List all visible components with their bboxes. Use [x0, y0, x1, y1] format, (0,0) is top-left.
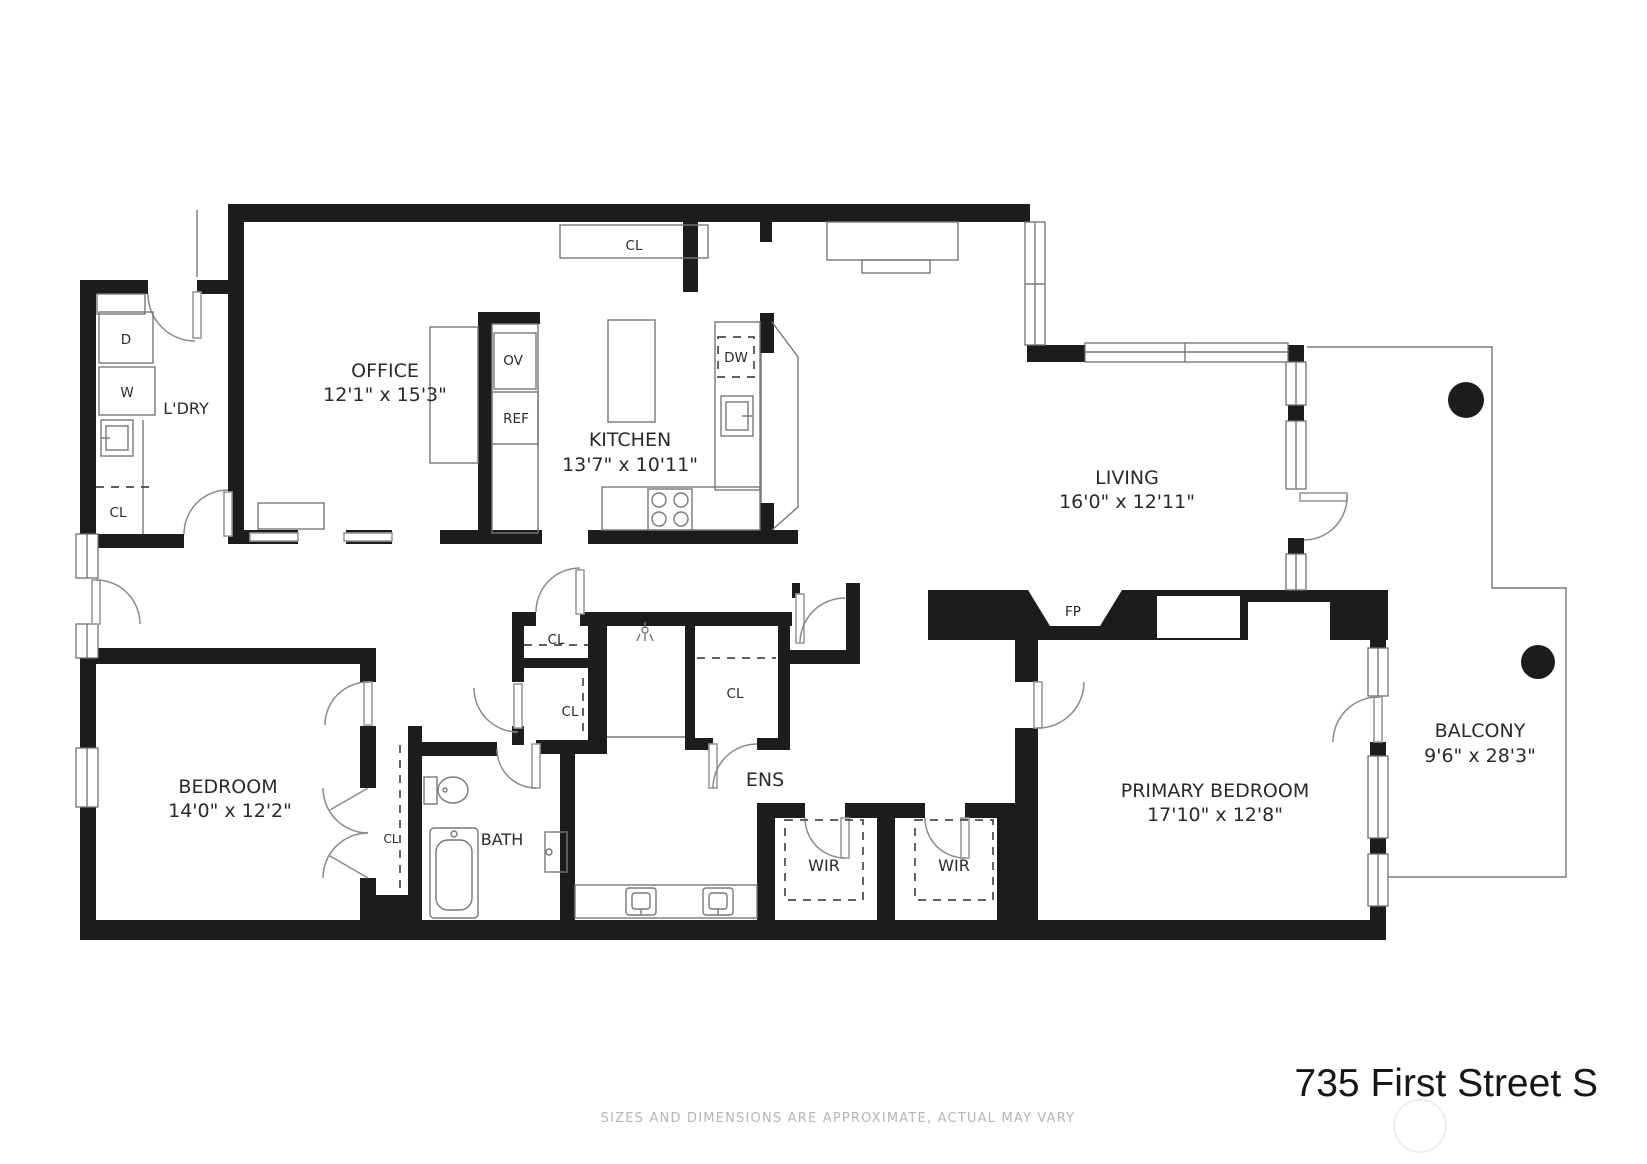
office-credenza: [258, 503, 324, 529]
toilet-icon: [424, 777, 468, 804]
closet-label: CL: [562, 704, 579, 720]
kitchen-peninsula: [715, 322, 760, 490]
oven-label: OV: [503, 353, 523, 369]
kitchen-angled-wall: [772, 322, 798, 530]
room-label-primary-bedroom: PRIMARY BEDROOM: [1121, 780, 1309, 802]
kitchen-island: [608, 320, 655, 422]
entry-alcove: [827, 222, 958, 260]
disclaimer-text: SIZES AND DIMENSIONS ARE APPROXIMATE, AC…: [601, 1111, 1076, 1126]
dishwasher-label: DW: [724, 350, 748, 366]
fireplace-label: FP: [1065, 604, 1081, 620]
room-dims-living: 16'0" x 12'11": [1059, 491, 1195, 513]
balcony-column-icon: [1448, 382, 1484, 418]
laundry-shelf: [97, 294, 145, 314]
floorplan-page: OFFICE 12'1" x 15'3" KITCHEN 13'7" x 10'…: [0, 0, 1647, 1164]
closet-label: CL: [548, 632, 565, 648]
balcony-column-icon: [1521, 645, 1555, 679]
room-dims-bedroom: 14'0" x 12'2": [168, 800, 292, 822]
sink-icon: [703, 888, 733, 915]
walk-in-robe-label: WIR: [938, 856, 970, 875]
closet-label: CL: [110, 505, 127, 521]
washer-label: W: [120, 385, 133, 401]
page-title: 735 First Street S: [1295, 1062, 1598, 1105]
walk-in-robe-label: WIR: [808, 856, 840, 875]
entry-alcove-step: [862, 260, 930, 273]
kitchen-counter: [602, 487, 760, 530]
room-label-balcony: BALCONY: [1435, 720, 1526, 742]
sink-icon: [626, 888, 656, 915]
floorplan-canvas: OFFICE 12'1" x 15'3" KITCHEN 13'7" x 10'…: [0, 0, 1647, 1164]
bathtub-icon: [430, 828, 478, 918]
room-label-office: OFFICE: [351, 360, 419, 382]
kitchen-sink-icon: [721, 396, 753, 436]
room-label-ensuite: ENS: [746, 769, 784, 791]
room-label-living: LIVING: [1095, 467, 1159, 489]
room-dims-balcony: 9'6" x 28'3": [1424, 745, 1536, 767]
room-label-kitchen: KITCHEN: [589, 429, 671, 451]
laundry-sink-icon: [101, 420, 133, 456]
room-dims-primary-bedroom: 17'10" x 12'8": [1147, 804, 1283, 826]
room-dims-kitchen: 13'7" x 10'11": [562, 454, 698, 476]
closet-label: CL: [626, 238, 643, 254]
ensuite-vanity: [575, 885, 757, 918]
refrigerator-label: REF: [503, 411, 529, 427]
closet-label: CL: [383, 832, 398, 846]
room-dims-office: 12'1" x 15'3": [323, 384, 447, 406]
room-label-bath: BATH: [481, 830, 523, 849]
room-label-bedroom: BEDROOM: [178, 776, 277, 798]
room-label-laundry: L'DRY: [163, 399, 209, 418]
walls: [80, 204, 1388, 940]
dryer-label: D: [121, 332, 131, 348]
closet-label: CL: [727, 686, 744, 702]
watermark-circle: [1394, 1100, 1446, 1152]
